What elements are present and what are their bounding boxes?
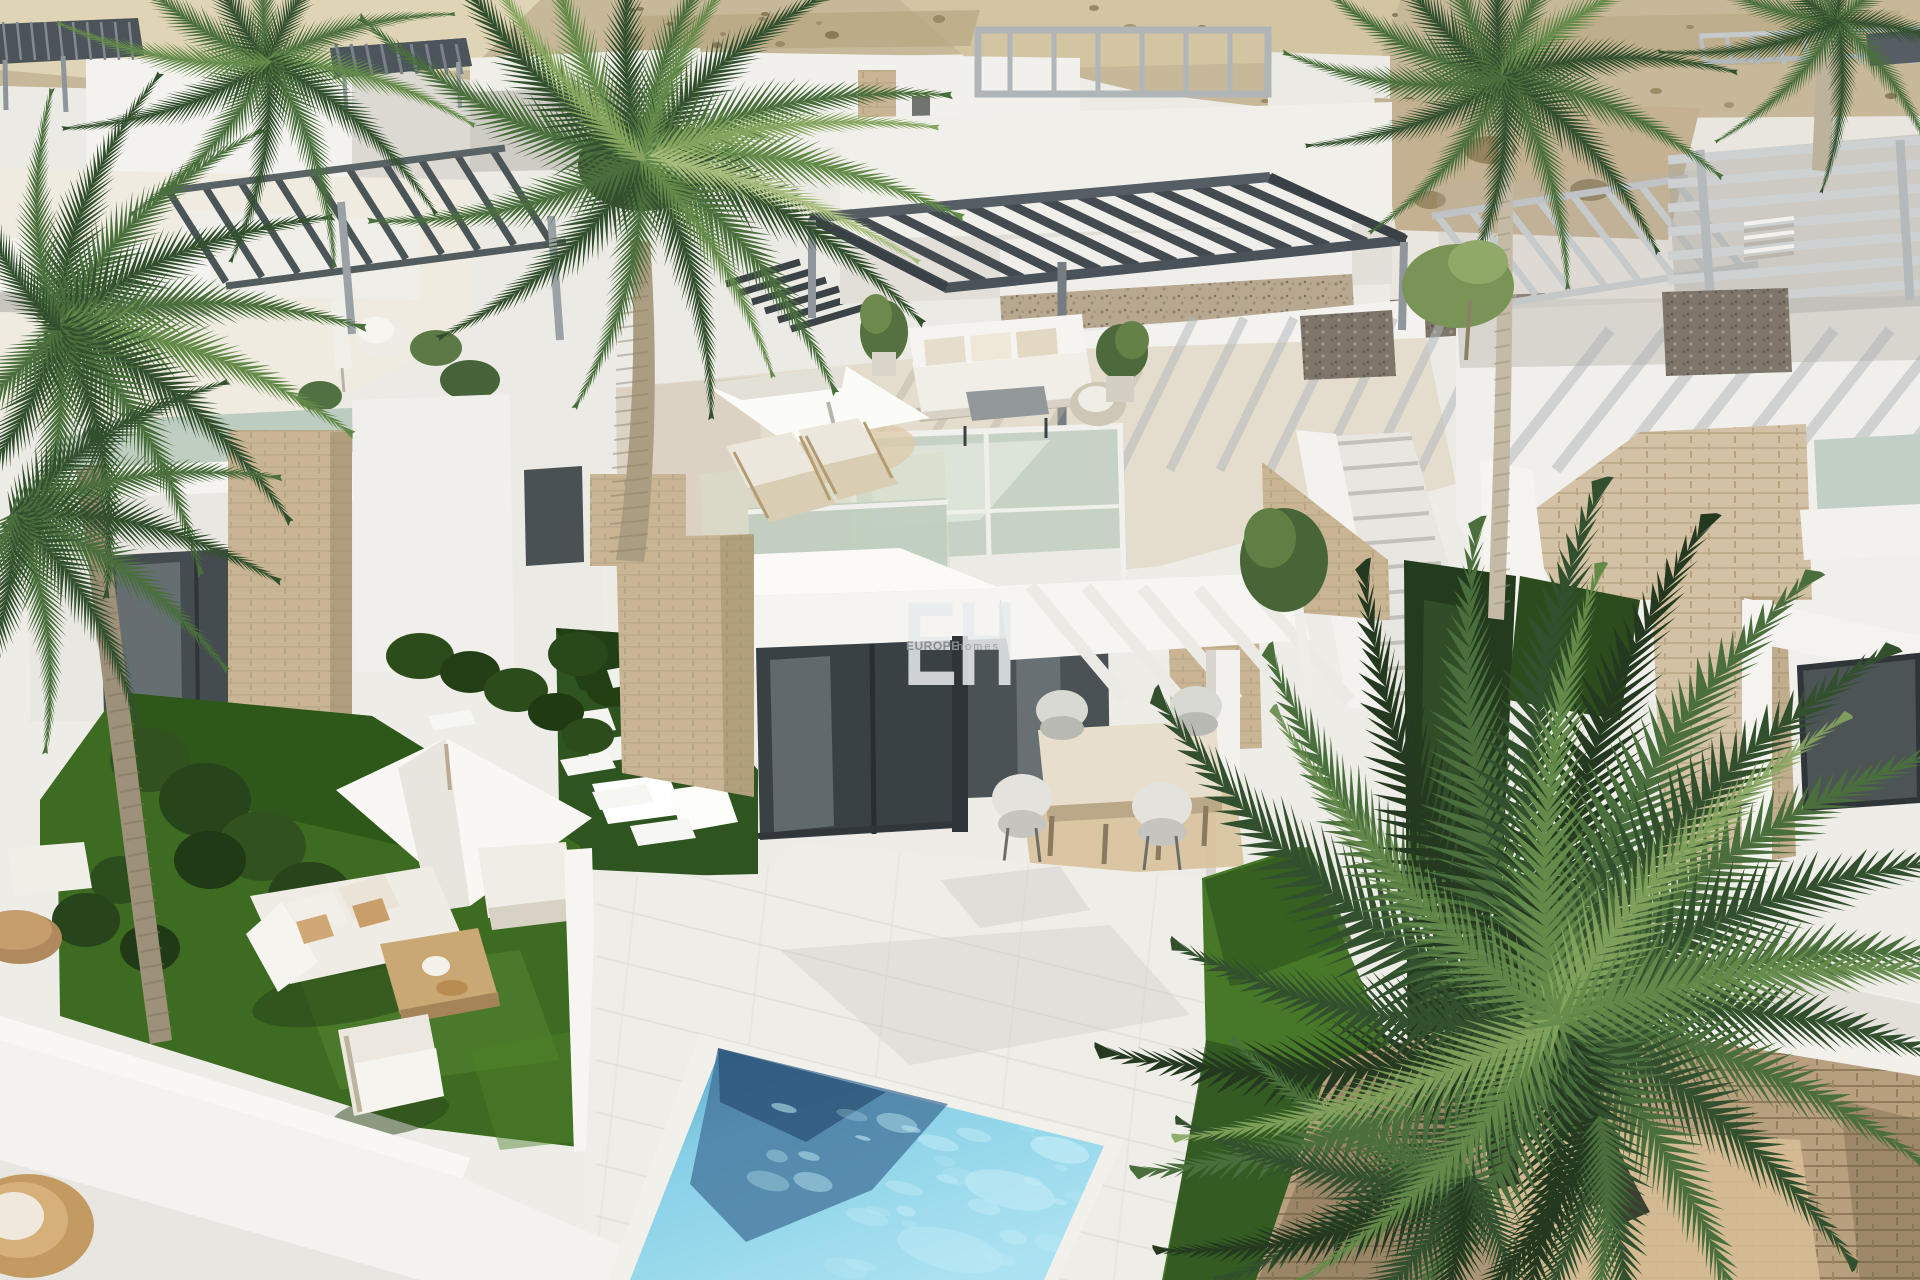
svg-text:EUROPE: EUROPE [906, 639, 960, 653]
svg-text:homes: homes [957, 641, 1000, 653]
